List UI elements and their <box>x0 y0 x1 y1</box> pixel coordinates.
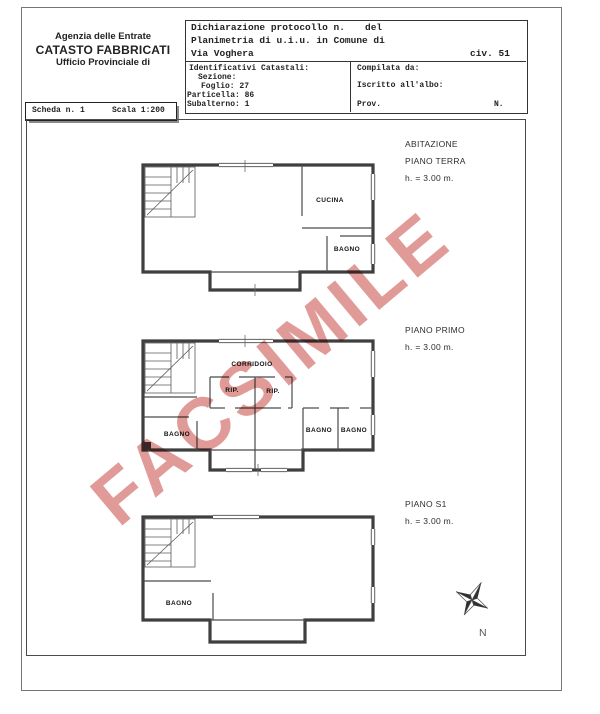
room-label-bagno3: BAGNO <box>341 427 367 434</box>
room-label-bagno2: BAGNO <box>306 427 332 434</box>
floor1-title-block: PIANO PRIMO h. = 3.00 m. <box>405 322 525 356</box>
cadastral-ids-title: Identificativi Catastali: <box>189 64 309 73</box>
catasto-title: CATASTO FABBRICATI <box>26 43 180 57</box>
compilata-da-label: Compilata da: <box>357 64 419 73</box>
form-divider-horizontal <box>185 61 526 62</box>
n-label: N. <box>494 100 504 109</box>
sezione-field: Sezione: <box>198 73 236 82</box>
particella-field: Particella: 86 <box>187 91 254 100</box>
window-openings <box>213 513 377 603</box>
protocol-label: Dichiarazione protocollo n. <box>191 22 345 33</box>
scale-label: Scala 1:200 <box>112 106 165 115</box>
subalterno-field: Subalterno: 1 <box>187 100 249 109</box>
floor0-name: ABITAZIONE <box>405 136 525 153</box>
room-label-cucina: CUCINA <box>316 197 344 204</box>
staircase-icon <box>145 167 195 217</box>
cadastral-document-page: Agenzia delle Entrate CATASTO FABBRICATI… <box>0 0 600 714</box>
prov-label: Prov. <box>357 100 381 109</box>
provincial-office-label: Ufficio Provinciale di <box>26 57 180 68</box>
compass-rose-icon: N <box>448 578 498 642</box>
room-label-bagno-s1: BAGNO <box>166 600 192 607</box>
iscritto-albo-label: Iscritto all'albo: <box>357 81 443 90</box>
scheda-number: Scheda n. 1 <box>32 106 85 115</box>
agency-name: Agenzia delle Entrate <box>26 31 180 42</box>
floor1-height: h. = 3.00 m. <box>405 339 525 356</box>
floor1-title: PIANO PRIMO <box>405 322 525 339</box>
floor2-title-block: PIANO S1 h. = 3.00 m. <box>405 496 525 530</box>
foglio-field: Foglio: 27 <box>201 82 249 91</box>
floor2-height: h. = 3.00 m. <box>405 513 525 530</box>
floor-plan-piano-s1: BAGNO <box>133 505 379 653</box>
form-divider-vertical <box>350 61 351 112</box>
planimetria-label: Planimetria di u.i.u. in Comune di <box>191 35 385 46</box>
street-value: Via Voghera <box>191 48 254 59</box>
civic-number: civ. 51 <box>470 48 510 59</box>
floor2-title: PIANO S1 <box>405 496 525 513</box>
compass-north-label: N <box>479 627 487 639</box>
protocol-del-label: del <box>365 22 382 33</box>
